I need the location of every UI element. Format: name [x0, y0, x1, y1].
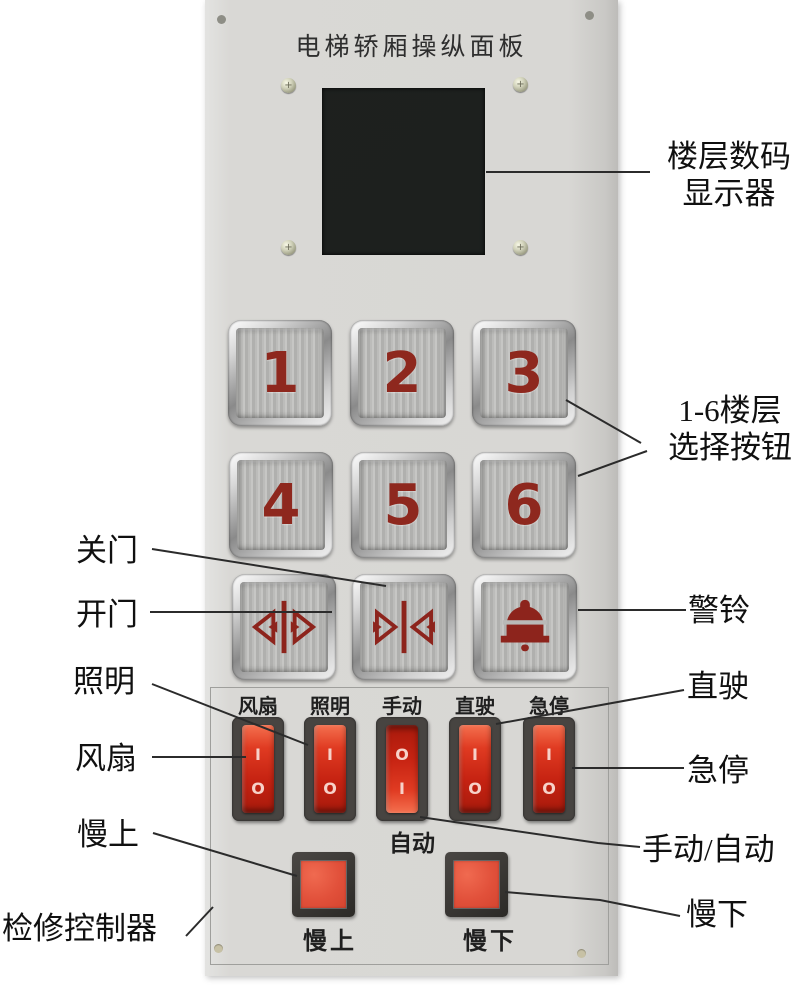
emergency-stop-switch-label: 急停 [519, 690, 579, 719]
door-open-button[interactable] [232, 574, 336, 680]
callout-lighting: 照明 [73, 663, 135, 700]
screw-icon: + [281, 78, 296, 93]
manual-switch-label: 手动 [372, 690, 432, 719]
callout-fan: 风扇 [75, 740, 137, 777]
floor-button-4[interactable]: 4 [229, 452, 333, 558]
floor-button-3-label: 3 [505, 341, 544, 406]
floor-button-4-label: 4 [262, 473, 301, 538]
mounting-hole-icon [217, 15, 226, 24]
slow-up-button[interactable] [292, 852, 355, 917]
floor-button-5-label: 5 [384, 473, 423, 538]
callout-close-door: 关门 [76, 532, 138, 569]
switch-mark: O [242, 781, 274, 797]
callout-slow-down: 慢下 [686, 896, 748, 933]
callout-floor-display-line1: 楼层数码 [648, 138, 810, 175]
screw-icon: + [513, 77, 528, 92]
floor-button-2-label: 2 [383, 341, 422, 406]
callout-floor-select: 1-6楼层 选择按钮 [650, 392, 810, 466]
callout-inspection-controller: 检修控制器 [2, 910, 157, 947]
callout-floor-select-line1: 1-6楼层 [650, 392, 810, 429]
mounting-hole-icon [585, 11, 594, 20]
switch-mark: O [459, 781, 491, 797]
fan-switch-label: 风扇 [228, 690, 288, 719]
floor-button-2[interactable]: 2 [350, 320, 454, 426]
floor-number-display [322, 88, 485, 255]
callout-slow-up: 慢上 [77, 816, 139, 853]
floor-button-6-label: 6 [505, 473, 544, 538]
callout-manual-auto: 手动/自动 [642, 831, 775, 868]
door-close-button[interactable] [352, 574, 456, 680]
switch-mark: O [386, 747, 418, 763]
fan-switch[interactable]: I O [232, 717, 284, 821]
callout-bell: 警铃 [688, 592, 750, 629]
slow-up-printed-label: 慢上 [295, 921, 365, 956]
switch-mark: I [459, 747, 491, 763]
switch-mark: O [314, 781, 346, 797]
callout-direct-drive: 直驶 [687, 668, 749, 705]
switch-mark: I [386, 781, 418, 797]
panel-title: 电梯轿厢操纵面板 [205, 27, 618, 63]
callout-emergency-stop: 急停 [687, 752, 749, 789]
floor-button-1[interactable]: 1 [228, 320, 332, 426]
light-switch[interactable]: I O [304, 717, 356, 821]
switch-mark: I [533, 747, 565, 763]
screw-icon: + [281, 240, 296, 255]
door-open-icon [247, 597, 321, 657]
emergency-stop-switch[interactable]: I O [523, 717, 575, 821]
light-switch-label: 照明 [300, 690, 360, 719]
direct-drive-switch-label: 直驶 [445, 690, 505, 719]
slow-down-printed-label: 慢下 [455, 921, 525, 956]
alarm-bell-icon [494, 596, 556, 658]
floor-button-1-label: 1 [261, 341, 300, 406]
slow-down-button[interactable] [445, 852, 508, 917]
switch-mark: I [314, 747, 346, 763]
auto-printed-label: 自动 [376, 824, 448, 858]
callout-floor-display: 楼层数码 显示器 [648, 138, 810, 212]
switch-mark: I [242, 747, 274, 763]
callout-floor-select-line2: 选择按钮 [650, 429, 810, 466]
floor-button-6[interactable]: 6 [472, 452, 576, 558]
callout-floor-display-line2: 显示器 [648, 175, 810, 212]
door-close-icon [367, 597, 441, 657]
floor-button-3[interactable]: 3 [472, 320, 576, 426]
annotated-elevator-panel-figure: 电梯轿厢操纵面板 + + + + 1 2 3 4 5 6 [0, 0, 810, 986]
manual-auto-switch[interactable]: O I [376, 717, 428, 821]
alarm-bell-button[interactable] [473, 574, 577, 680]
direct-drive-switch[interactable]: I O [449, 717, 501, 821]
floor-button-5[interactable]: 5 [351, 452, 455, 558]
callout-open-door: 开门 [76, 596, 138, 633]
screw-icon: + [513, 240, 528, 255]
switch-mark: O [533, 781, 565, 797]
